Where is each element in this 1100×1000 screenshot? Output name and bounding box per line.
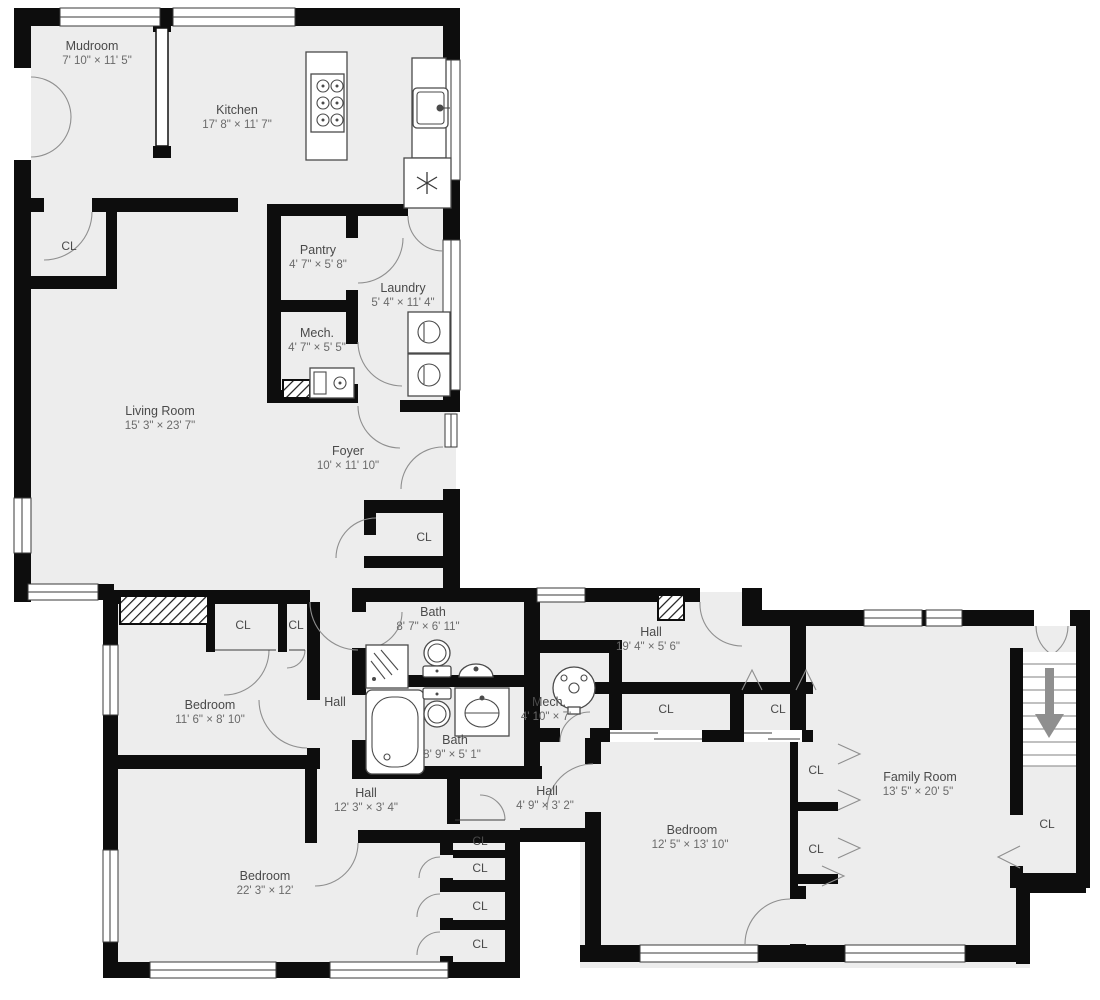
svg-text:Bedroom: Bedroom <box>667 823 718 837</box>
washer-icon <box>408 312 450 353</box>
svg-text:15' 3" × 23' 7": 15' 3" × 23' 7" <box>125 420 195 432</box>
svg-text:12' 3" × 3' 4": 12' 3" × 3' 4" <box>334 802 398 814</box>
closet-label: CL <box>472 937 488 951</box>
chimney-hatch <box>283 380 310 398</box>
closet-label: CL <box>288 618 304 632</box>
svg-text:4' 7" × 5' 8": 4' 7" × 5' 8" <box>289 259 347 271</box>
furnace-icon <box>310 368 354 398</box>
svg-text:Living Room: Living Room <box>125 404 194 418</box>
partition-wall <box>156 28 168 146</box>
refrigerator-icon <box>404 158 451 208</box>
closet-label: CL <box>808 842 824 856</box>
svg-text:11' 6" × 8' 10": 11' 6" × 8' 10" <box>175 714 245 726</box>
room-label-hall-center: Hall <box>324 695 346 709</box>
chimney-hatch <box>658 595 684 620</box>
sliding-door <box>610 730 702 742</box>
svg-text:4' 9" × 3' 2": 4' 9" × 3' 2" <box>516 800 574 812</box>
svg-text:Hall: Hall <box>536 784 558 798</box>
chimney-hatch <box>120 596 208 624</box>
shower-icon <box>366 645 408 688</box>
svg-text:7' 10" × 11' 5": 7' 10" × 11' 5" <box>62 55 132 67</box>
svg-text:Pantry: Pantry <box>300 243 337 257</box>
kitchen-sink-icon <box>413 88 450 128</box>
svg-text:8' 9" × 5' 1": 8' 9" × 5' 1" <box>423 749 481 761</box>
closet-label: CL <box>658 702 674 716</box>
svg-text:Foyer: Foyer <box>332 444 364 458</box>
svg-text:12' 5" × 13' 10": 12' 5" × 13' 10" <box>652 839 729 851</box>
stairs <box>1023 652 1076 766</box>
closet-label: CL <box>1039 817 1055 831</box>
svg-text:Kitchen: Kitchen <box>216 103 258 117</box>
closet-label: CL <box>472 834 488 848</box>
bathtub-icon <box>366 690 424 774</box>
stove-icon <box>311 74 344 132</box>
svg-text:Bath: Bath <box>442 733 468 747</box>
svg-text:10' × 11' 10": 10' × 11' 10" <box>317 460 379 472</box>
vanity-sink-icon <box>455 688 509 736</box>
svg-text:Mudroom: Mudroom <box>66 39 119 53</box>
svg-text:Family Room: Family Room <box>883 770 957 784</box>
svg-text:13' 5" × 20' 5": 13' 5" × 20' 5" <box>883 786 953 798</box>
svg-text:5' 4" × 11' 4": 5' 4" × 11' 4" <box>371 297 434 309</box>
closet-label: CL <box>235 618 251 632</box>
svg-text:Bedroom: Bedroom <box>240 869 291 883</box>
svg-text:19' 4" × 5' 6": 19' 4" × 5' 6" <box>616 641 680 653</box>
svg-text:Hall: Hall <box>355 786 377 800</box>
sliding-door <box>744 730 802 742</box>
svg-text:Bedroom: Bedroom <box>185 698 236 712</box>
svg-text:Bath: Bath <box>420 605 446 619</box>
toilet-icon <box>423 688 451 727</box>
svg-text:Mech.: Mech. <box>532 695 566 709</box>
closet-label: CL <box>808 763 824 777</box>
closet-label: CL <box>770 702 786 716</box>
closet-label: CL <box>472 861 488 875</box>
svg-text:17' 8" × 11' 7": 17' 8" × 11' 7" <box>202 119 272 131</box>
svg-text:Mech.: Mech. <box>300 326 334 340</box>
svg-text:Laundry: Laundry <box>380 281 426 295</box>
svg-text:4' 7" × 5' 5": 4' 7" × 5' 5" <box>288 342 346 354</box>
svg-text:Hall: Hall <box>324 695 346 709</box>
toilet-icon <box>423 640 451 677</box>
svg-text:Hall: Hall <box>640 625 662 639</box>
closet-label: CL <box>472 899 488 913</box>
dryer-icon <box>408 354 450 396</box>
svg-text:4' 10" × 7': 4' 10" × 7' <box>521 711 571 723</box>
floor-plan: Mudroom 7' 10" × 11' 5" Kitchen 17' 8" ×… <box>0 0 1100 1000</box>
floor-plan-drawing: Mudroom 7' 10" × 11' 5" Kitchen 17' 8" ×… <box>0 0 1100 1000</box>
svg-text:22' 3" × 12': 22' 3" × 12' <box>237 885 294 897</box>
closet-label: CL <box>416 530 432 544</box>
closet-label: CL <box>61 239 77 253</box>
svg-text:8' 7" × 6' 11": 8' 7" × 6' 11" <box>396 621 459 633</box>
double-door-opening <box>14 68 31 160</box>
double-door-opening <box>1034 610 1070 626</box>
